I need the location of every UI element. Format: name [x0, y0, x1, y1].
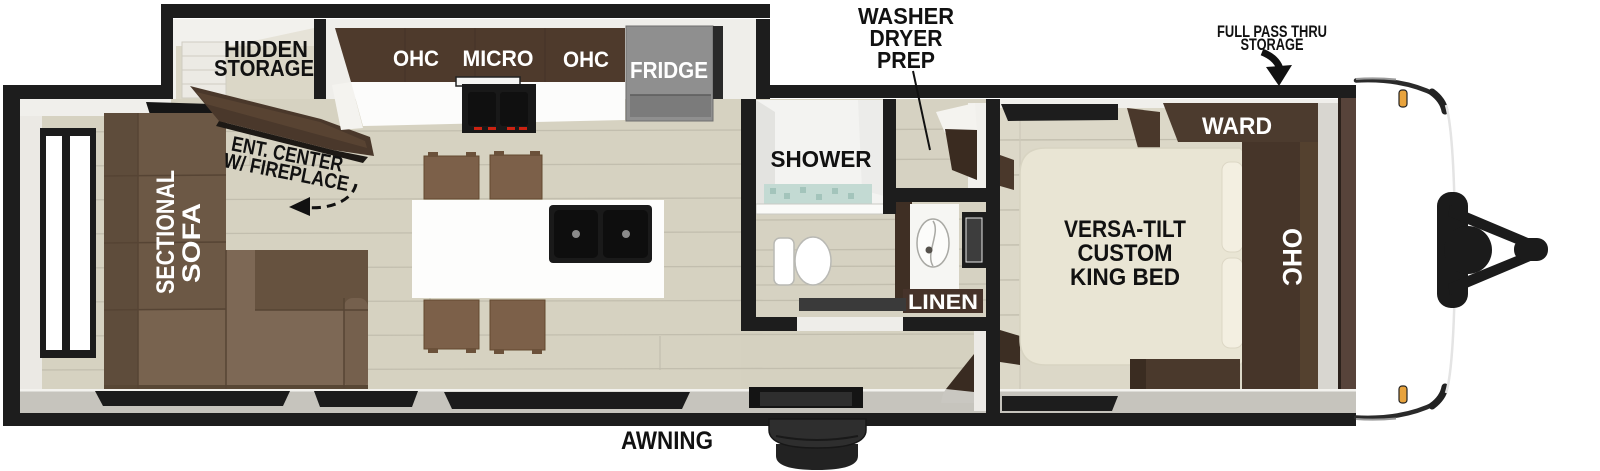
svg-text:FRIDGE: FRIDGE	[630, 57, 708, 83]
svg-text:WARD: WARD	[1202, 113, 1272, 140]
svg-text:STORAGE: STORAGE	[214, 55, 314, 81]
svg-text:AWNING: AWNING	[621, 427, 713, 455]
svg-text:SECTIONAL: SECTIONAL	[152, 170, 180, 294]
svg-text:OHC: OHC	[1277, 228, 1307, 286]
svg-text:VERSA-TILT: VERSA-TILT	[1064, 216, 1186, 243]
svg-text:SOFA: SOFA	[178, 203, 206, 283]
svg-text:STORAGE: STORAGE	[1241, 35, 1304, 54]
svg-text:KING BED: KING BED	[1070, 264, 1180, 291]
svg-text:PREP: PREP	[877, 47, 935, 73]
svg-text:CUSTOM: CUSTOM	[1078, 240, 1173, 267]
svg-text:LINEN: LINEN	[908, 291, 978, 314]
svg-text:OHC: OHC	[393, 46, 439, 71]
svg-text:SHOWER: SHOWER	[771, 146, 872, 172]
svg-text:OHC: OHC	[563, 47, 609, 72]
svg-text:MICRO: MICRO	[463, 46, 534, 71]
